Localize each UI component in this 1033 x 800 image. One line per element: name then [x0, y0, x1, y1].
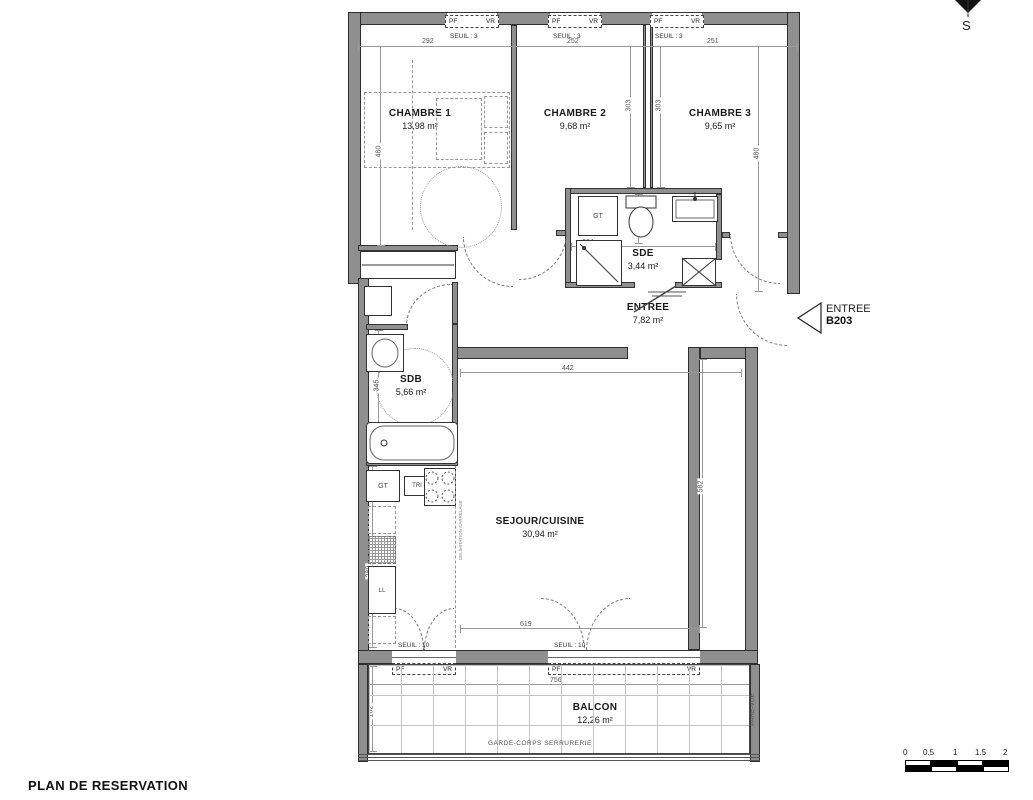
scale-tick: 0.5	[923, 748, 934, 757]
compass: S	[950, 0, 990, 40]
room-area: 7,82 m²	[600, 315, 696, 326]
wall-segment	[650, 25, 653, 188]
room-label-chambre3: CHAMBRE 3 9,65 m²	[670, 108, 770, 132]
scale-segment	[983, 766, 1009, 772]
clearance-circle	[420, 166, 502, 248]
wall-segment	[688, 347, 700, 650]
gt-label: GT	[593, 213, 603, 220]
scale-segment	[905, 766, 931, 772]
technical-duct	[682, 258, 716, 286]
room-area: 9,65 m²	[670, 121, 770, 132]
door-swing-chambre2	[519, 232, 567, 280]
pf-label: PF	[552, 18, 560, 25]
gt-box-sde: GT	[578, 196, 618, 236]
page-title: PLAN DE RESERVATION	[28, 778, 188, 793]
door-swing-chambre3	[730, 234, 780, 284]
seuil-label: SEUIL : 10	[398, 642, 429, 649]
dimension-label: 252	[565, 38, 581, 45]
dimension-label: 582	[697, 479, 704, 495]
cooktop	[424, 468, 456, 506]
gt-label: GT	[378, 483, 388, 490]
washbasin-sdb	[366, 334, 404, 372]
washbasin-sde	[672, 196, 718, 222]
dimension-line	[660, 46, 661, 188]
wall-segment	[452, 282, 458, 324]
window-pf-vr-label: PFVR	[445, 15, 499, 28]
carrelage-annotation: DELIMITATION CARRELAGE	[458, 500, 463, 560]
entry-marker-line2: B203	[826, 315, 871, 327]
wall-segment	[643, 25, 646, 188]
bathtub	[366, 422, 458, 464]
room-name: CHAMBRE 2	[525, 108, 625, 121]
vr-label: VR	[589, 18, 598, 25]
kitchen-cabinet	[368, 506, 396, 534]
dimension-label: 292	[420, 38, 436, 45]
seuil-label: SEUIL : 3	[450, 33, 478, 40]
room-area: 9,68 m²	[525, 121, 625, 132]
room-name: ENTREE	[600, 302, 696, 315]
dressing-boundary	[412, 60, 413, 230]
compass-south-label: S	[962, 18, 971, 33]
dimension-line	[630, 46, 631, 188]
pf-label: PF	[449, 18, 457, 25]
dimension-label: 170	[633, 218, 640, 234]
washing-machine: LL	[368, 566, 396, 614]
dimension-label: 619	[518, 621, 534, 628]
entry-marker: ENTREE B203	[826, 303, 871, 327]
room-area: 30,94 m²	[480, 529, 600, 540]
balcony-railing	[358, 754, 760, 763]
dimension-label: 251	[705, 38, 721, 45]
scale-segment	[931, 766, 957, 772]
gt-box-kitchen: GT	[366, 470, 400, 502]
furniture-nightstand	[484, 96, 508, 128]
wall-segment	[511, 25, 517, 230]
entry-marker-line1: ENTREE	[826, 303, 871, 315]
dimension-line	[358, 46, 798, 47]
scale-segment	[957, 766, 983, 772]
wall-segment	[745, 347, 758, 664]
shower	[576, 240, 622, 286]
wall-segment	[358, 664, 368, 762]
wall-segment	[366, 324, 408, 330]
scale-tick: 2	[1003, 748, 1007, 757]
window	[548, 650, 700, 664]
seuil-label: SEUIL : 10	[554, 642, 585, 649]
wall-segment	[722, 232, 730, 238]
scale-bar: 0 0.5 1 1.5 2	[903, 748, 1013, 776]
vr-label: VR	[486, 18, 495, 25]
kitchen-cabinet	[368, 616, 396, 644]
window	[392, 650, 456, 664]
window-pf-vr-label: PFVR	[548, 15, 602, 28]
closet	[360, 251, 456, 279]
floor-plan: PFVR SEUIL : 3 PFVR SEUIL : 3 PFVR SEUIL…	[0, 0, 1033, 800]
ll-label: LL	[378, 587, 385, 594]
seuil-label: SEUIL : 3	[655, 33, 683, 40]
garde-corps-label: GARDE-CORPS SERRURERIE	[488, 740, 592, 747]
scale-tick: 1.5	[975, 748, 986, 757]
furniture-nightstand	[436, 98, 482, 160]
scale-tick: 0	[903, 748, 907, 757]
dimension-label: 303	[655, 98, 662, 114]
dimension-label: 303	[625, 98, 632, 114]
dimension-label: 442	[560, 365, 576, 372]
room-name: SEJOUR/CUISINE	[480, 516, 600, 529]
room-label-sejour: SEJOUR/CUISINE 30,94 m²	[480, 516, 600, 540]
wall-segment	[565, 188, 722, 194]
tri-label: TRI	[412, 483, 422, 489]
kitchen-cabinet-hatched	[368, 536, 396, 564]
door-swing-entree	[736, 294, 788, 346]
room-label-chambre2: CHAMBRE 2 9,68 m²	[525, 108, 625, 132]
dimension-label: 480	[753, 146, 760, 162]
kitchen-boundary-dashed	[455, 466, 456, 648]
pf-label: PF	[654, 18, 662, 25]
room-label-entree: ENTREE 7,82 m²	[600, 302, 696, 326]
wall-segment	[348, 12, 361, 284]
scale-tick: 1	[953, 748, 957, 757]
door-swing-sejour-right	[586, 598, 630, 652]
dimension-line	[460, 372, 742, 373]
wall-segment	[455, 347, 628, 359]
furniture-nightstand	[484, 132, 508, 164]
door-swing-sdb	[406, 284, 452, 326]
technical-panel	[364, 286, 392, 316]
pare-vue-label: PARE-VUE	[749, 693, 756, 726]
room-name: CHAMBRE 3	[670, 108, 770, 121]
vr-label: VR	[691, 18, 700, 25]
wall-segment	[787, 12, 800, 294]
window-pf-vr-label: PFVR	[650, 15, 704, 28]
